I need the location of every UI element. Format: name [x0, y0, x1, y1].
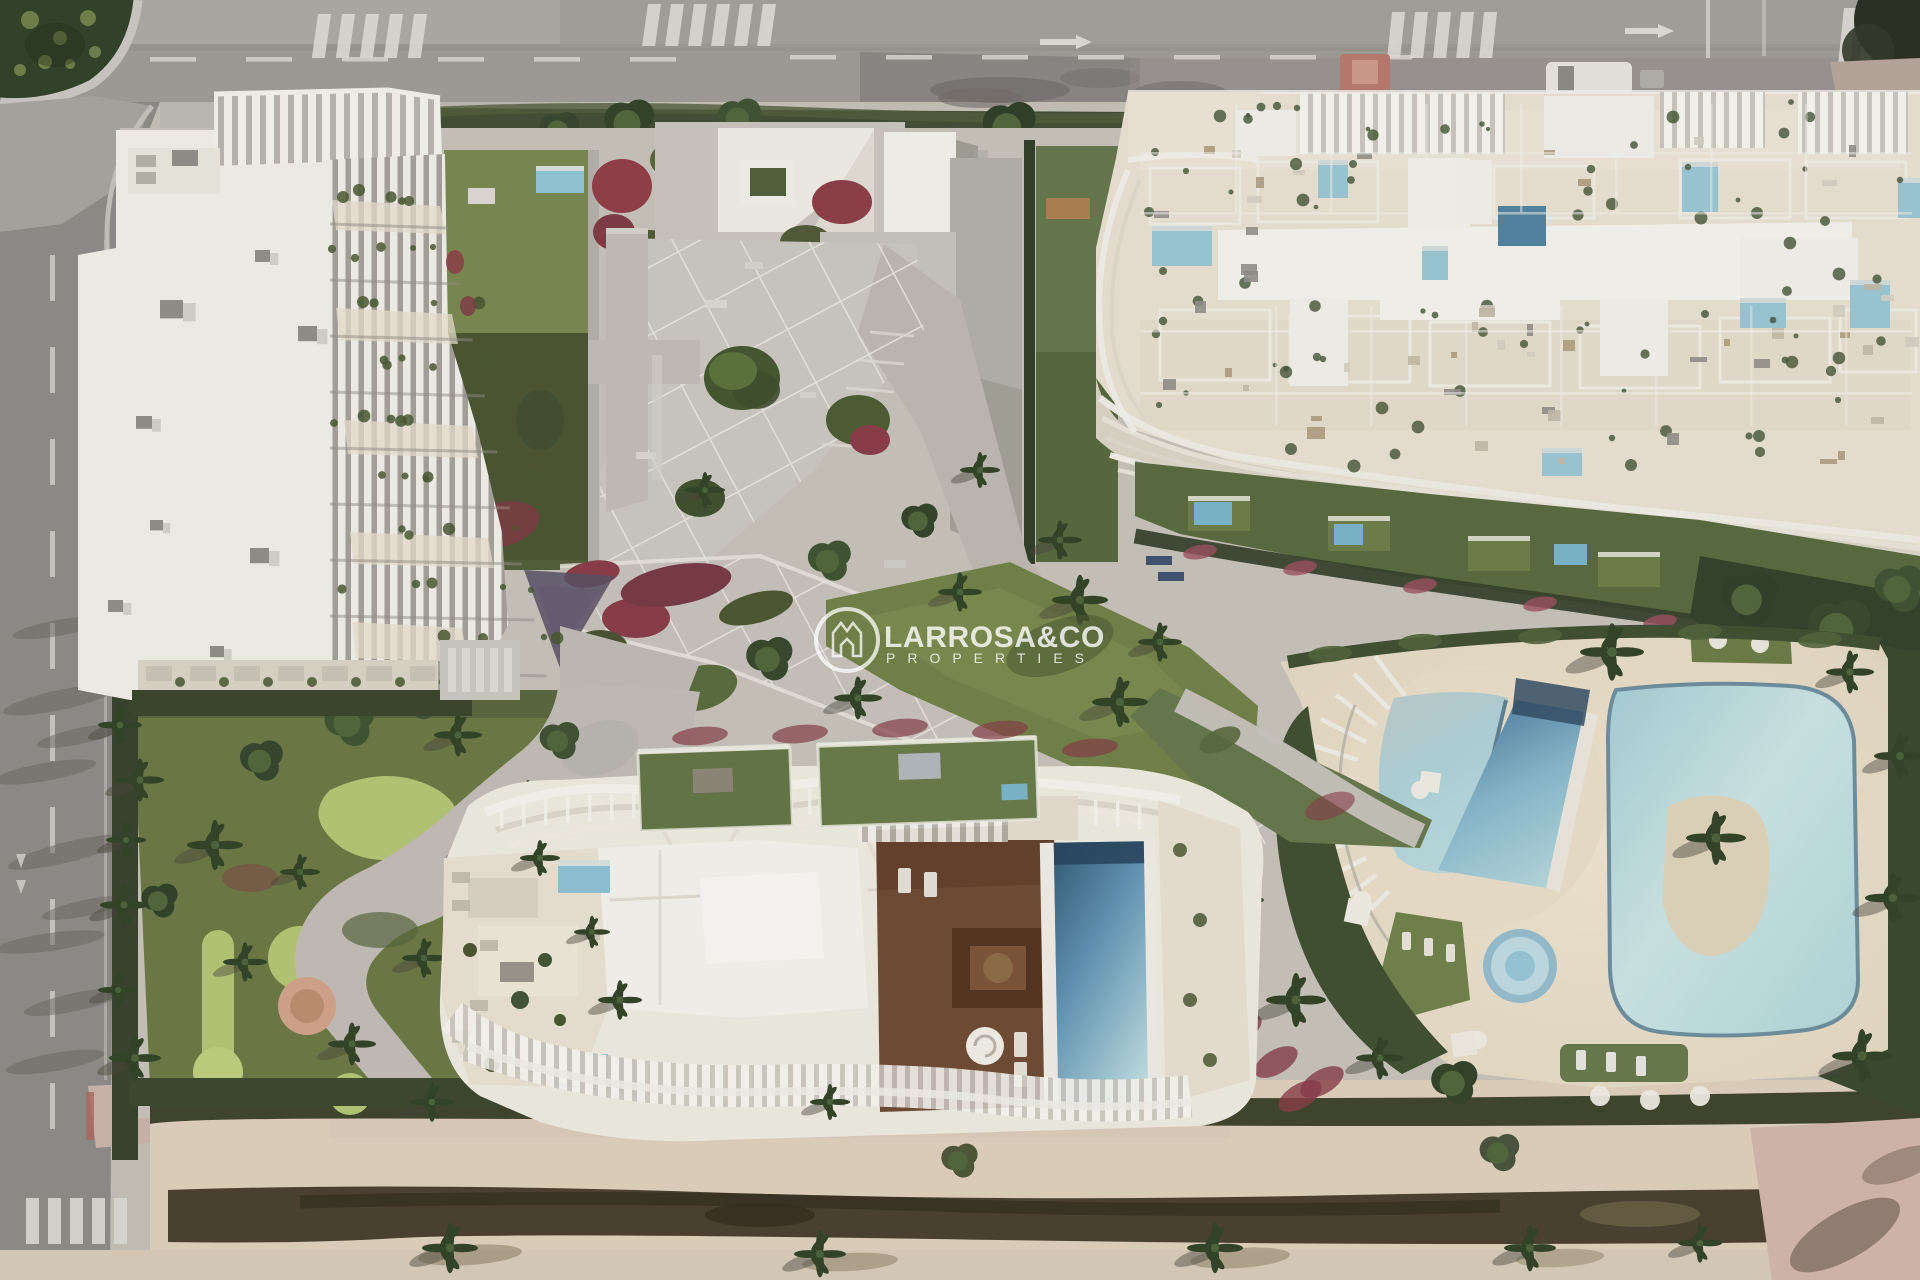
svg-text:PROPERTIES: PROPERTIES	[886, 650, 1096, 666]
